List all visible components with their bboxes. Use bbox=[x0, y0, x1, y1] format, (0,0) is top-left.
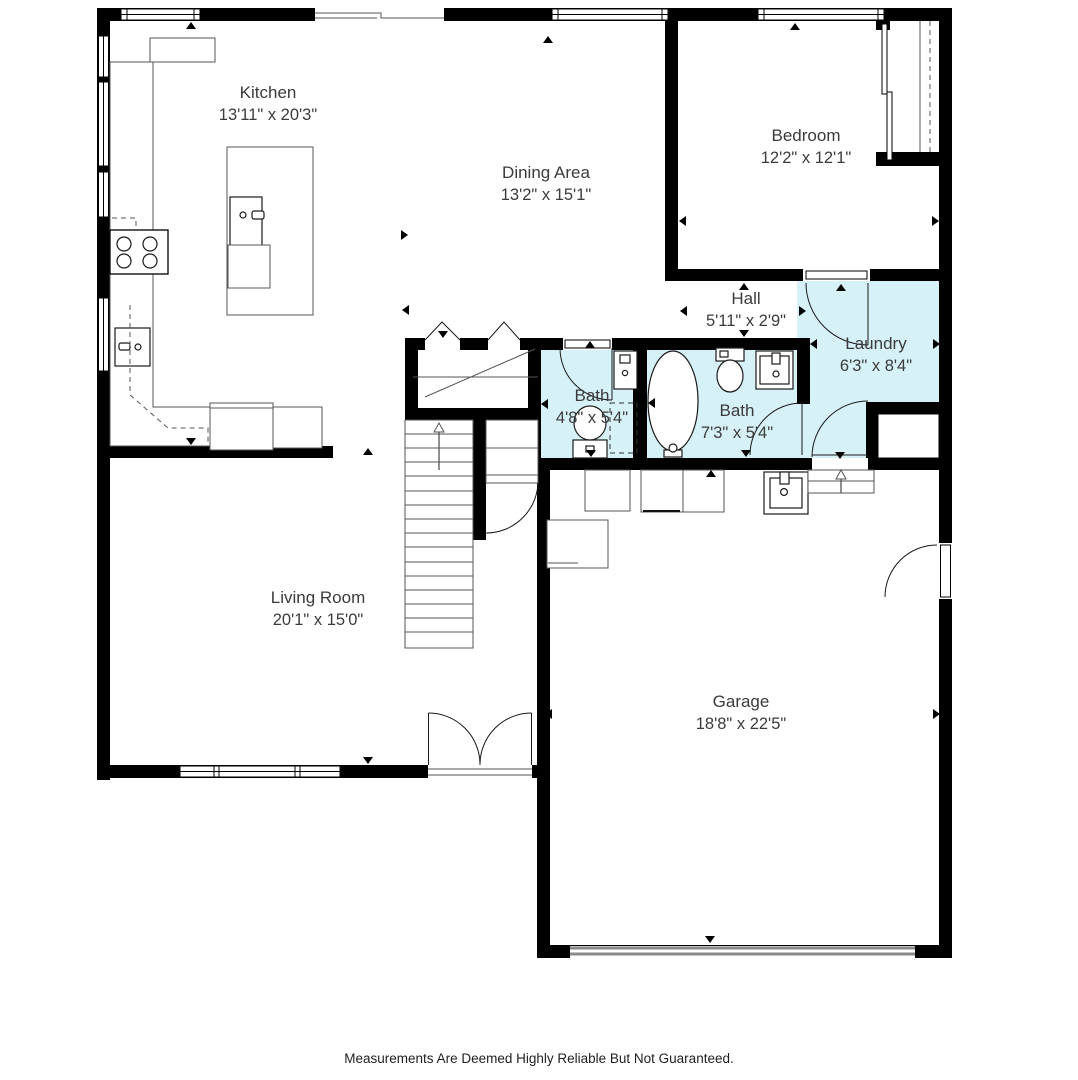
bedroom-closet bbox=[882, 21, 930, 160]
room-name: Hall bbox=[706, 287, 786, 310]
storage-box bbox=[585, 470, 630, 511]
room-dimensions: 13'2" x 15'1" bbox=[501, 184, 592, 207]
window bbox=[99, 172, 109, 217]
room-dimensions: 20'1" x 15'0" bbox=[271, 609, 366, 632]
room-name: Garage bbox=[696, 690, 787, 713]
room-dimensions: 12'2" x 12'1" bbox=[761, 147, 852, 170]
room-dimensions: 6'3" x 8'4" bbox=[840, 355, 912, 378]
thin-wall-section bbox=[315, 8, 444, 21]
sink bbox=[756, 351, 793, 389]
kitchen-island bbox=[227, 147, 313, 315]
entry-doorway bbox=[428, 765, 532, 778]
room-name: Dining Area bbox=[501, 161, 592, 184]
stairs bbox=[405, 420, 473, 648]
floor-plan: Kitchen 13'11" x 20'3" Dining Area 13'2"… bbox=[0, 0, 1078, 1080]
room-name: Bath bbox=[556, 384, 628, 407]
room-label-bath-1: Bath 4'8" x 5'4" bbox=[556, 384, 628, 430]
utility-sink bbox=[764, 472, 808, 514]
room-name: Living Room bbox=[271, 586, 366, 609]
kitchen-appliance bbox=[210, 403, 273, 450]
room-name: Kitchen bbox=[219, 81, 317, 104]
window bbox=[99, 82, 109, 166]
room-dimensions: 5'11" x 2'9" bbox=[706, 310, 786, 333]
room-label-hall: Hall 5'11" x 2'9" bbox=[706, 287, 786, 333]
room-label-laundry: Laundry 6'3" x 8'4" bbox=[840, 332, 912, 378]
kitchen-cabinet bbox=[150, 38, 215, 62]
room-name: Bedroom bbox=[761, 124, 852, 147]
storage-box bbox=[683, 470, 724, 512]
window bbox=[121, 9, 200, 20]
room-dimensions: 7'3" x 5'4" bbox=[701, 422, 773, 445]
door-swing bbox=[486, 480, 538, 533]
room-dimensions: 18'8" x 22'5" bbox=[696, 713, 787, 736]
stair-landing bbox=[486, 420, 538, 483]
window bbox=[99, 36, 109, 77]
window bbox=[180, 766, 340, 777]
toilet bbox=[716, 348, 744, 392]
kitchen-sink bbox=[115, 328, 150, 366]
mechanical-notch bbox=[866, 402, 939, 458]
room-label-garage: Garage 18'8" x 22'5" bbox=[696, 690, 787, 736]
room-label-dining-area: Dining Area 13'2" x 15'1" bbox=[501, 161, 592, 207]
french-door-swing bbox=[429, 713, 532, 765]
room-dimensions: 13'11" x 20'3" bbox=[219, 104, 317, 127]
room-dimensions: 4'8" x 5'4" bbox=[556, 407, 628, 430]
room-label-kitchen: Kitchen 13'11" x 20'3" bbox=[219, 81, 317, 127]
storage-box bbox=[641, 470, 683, 512]
storage-box bbox=[547, 520, 608, 568]
entry-closet bbox=[413, 349, 538, 397]
room-name: Laundry bbox=[840, 332, 912, 355]
island-cooktop bbox=[228, 245, 270, 288]
garage-entry-steps bbox=[808, 470, 874, 493]
island-sink bbox=[230, 197, 262, 247]
window bbox=[758, 9, 884, 20]
garage-fixtures bbox=[547, 470, 874, 568]
kitchen-appliance bbox=[273, 407, 322, 448]
window bbox=[99, 298, 109, 371]
measurements-disclaimer: Measurements Are Deemed Highly Reliable … bbox=[344, 1051, 733, 1066]
room-label-living-room: Living Room 20'1" x 15'0" bbox=[271, 586, 366, 632]
door-swing bbox=[885, 545, 937, 597]
room-label-bedroom: Bedroom 12'2" x 12'1" bbox=[761, 124, 852, 170]
stove bbox=[110, 230, 168, 274]
room-label-bath-2: Bath 7'3" x 5'4" bbox=[701, 399, 773, 445]
room-name: Bath bbox=[701, 399, 773, 422]
window bbox=[552, 9, 668, 20]
garage-steps-opening bbox=[812, 458, 868, 470]
